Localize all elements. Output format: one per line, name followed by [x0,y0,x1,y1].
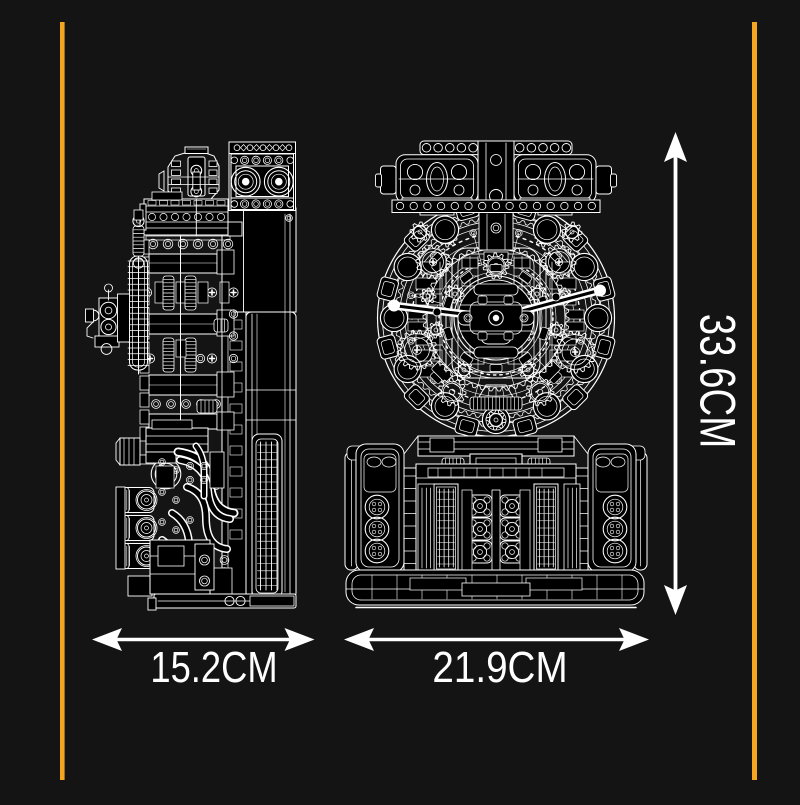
svg-text:33.6CM: 33.6CM [689,314,744,448]
svg-text:15.2CM: 15.2CM [150,642,277,692]
svg-text:21.9CM: 21.9CM [432,643,567,692]
